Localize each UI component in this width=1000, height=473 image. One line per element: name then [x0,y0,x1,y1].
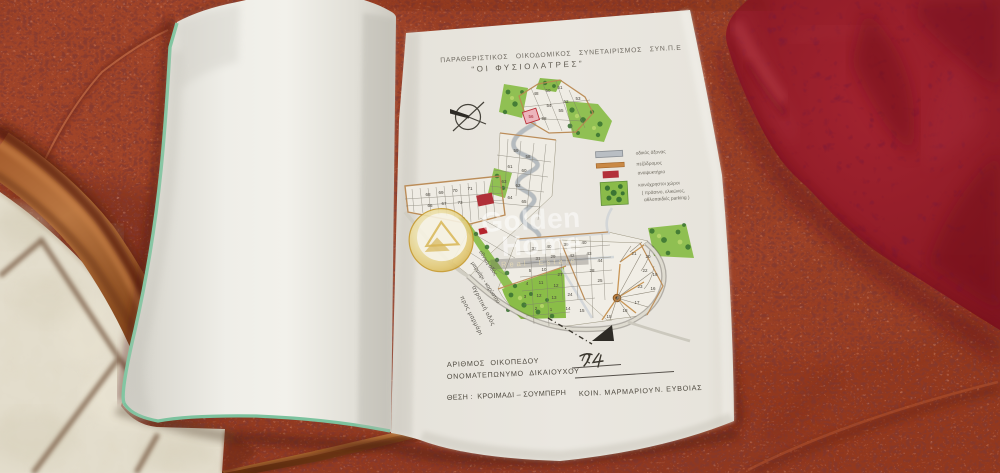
svg-text:62: 62 [515,183,521,188]
svg-text:12: 12 [536,293,542,298]
svg-text:68: 68 [425,192,431,197]
svg-text:21: 21 [631,251,637,256]
svg-text:48: 48 [533,91,539,96]
svg-text:60: 60 [521,168,527,173]
svg-text:69: 69 [438,190,444,195]
svg-text:28: 28 [589,268,595,273]
svg-text:24: 24 [567,292,573,297]
svg-text:14: 14 [565,306,571,311]
svg-text:11: 11 [539,280,544,285]
svg-text:22: 22 [642,268,648,273]
svg-text:53: 53 [575,96,581,101]
svg-text:56: 56 [528,114,534,119]
svg-text:17: 17 [634,300,640,305]
svg-text:52: 52 [563,99,569,104]
svg-text:70: 70 [452,188,458,193]
svg-text:50: 50 [545,88,551,93]
svg-text:40: 40 [581,240,587,245]
svg-text:15: 15 [579,308,585,313]
svg-text:27: 27 [557,272,563,277]
svg-text:51: 51 [557,85,563,90]
svg-text:63: 63 [501,179,507,184]
svg-text:12: 12 [553,283,559,288]
svg-text:73: 73 [457,200,463,205]
svg-text:58: 58 [541,116,547,121]
svg-text:55: 55 [558,108,564,113]
svg-text:25: 25 [597,278,603,283]
svg-text:64: 64 [507,195,513,200]
svg-text:20: 20 [645,254,651,259]
svg-text:67: 67 [441,201,447,206]
svg-text:19: 19 [652,272,658,277]
svg-text:23: 23 [637,284,643,289]
svg-text:54: 54 [546,103,552,108]
svg-text:66: 66 [427,203,433,208]
svg-text:61: 61 [507,164,513,169]
svg-text:13: 13 [551,295,557,300]
svg-text:58: 58 [525,154,531,159]
svg-text:16: 16 [650,286,656,291]
svg-text:18: 18 [622,308,628,313]
svg-text:65: 65 [521,199,527,204]
svg-text:71: 71 [467,186,473,191]
svg-text:10: 10 [541,267,547,272]
svg-text:44: 44 [597,258,603,263]
svg-text:15: 15 [606,314,612,319]
svg-text:59: 59 [513,148,519,153]
